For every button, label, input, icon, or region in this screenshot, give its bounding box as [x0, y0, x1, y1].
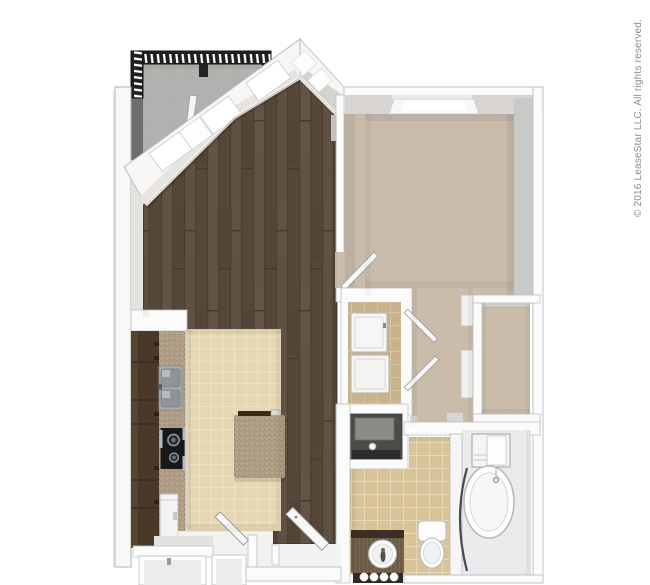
svg-text:© 2016 LeaseStar LLC. All righ: © 2016 LeaseStar LLC. All rights reserve…: [633, 19, 644, 217]
